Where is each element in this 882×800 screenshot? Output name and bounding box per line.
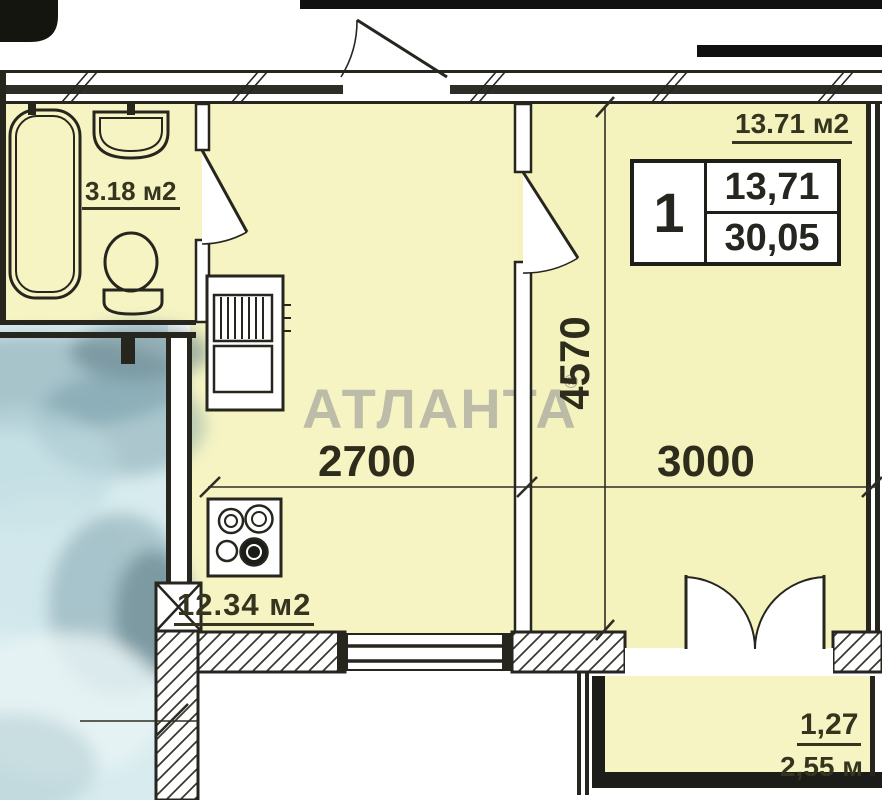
balcony-area-label: 1,27: [797, 710, 861, 746]
top-right-bar: [697, 45, 882, 57]
dim-2700: 2700: [318, 440, 416, 484]
right-wall: [866, 104, 880, 634]
bathroom-area-label: 3.18 м2: [82, 178, 180, 210]
kitchen-unit-icon: [207, 276, 291, 410]
stove-icon: [208, 499, 281, 576]
kitchen-area-label: 12.34 м2: [174, 589, 314, 626]
dim-3000: 3000: [657, 440, 755, 484]
balcony-length-label: 2,55 м: [780, 753, 863, 781]
floor-plan: АТЛАНТА ®: [0, 0, 882, 800]
legend-rooms-count: 1: [634, 163, 707, 262]
entrance-door: [341, 20, 447, 77]
dim-4570: 4570: [554, 313, 594, 413]
window: [338, 634, 512, 670]
left-wall: [0, 70, 6, 322]
watermark-text: АТЛАНТА: [302, 377, 578, 440]
legend-total-area: 30,05: [707, 214, 837, 262]
top-wall: [0, 70, 882, 104]
legend-box: 1 13,71 30,05: [630, 159, 841, 266]
legend-living-area: 13,71: [707, 163, 837, 214]
living-area-label: 13.71 м2: [732, 110, 852, 144]
top-edge-bar: [300, 0, 882, 9]
corner-blob: [0, 0, 58, 42]
